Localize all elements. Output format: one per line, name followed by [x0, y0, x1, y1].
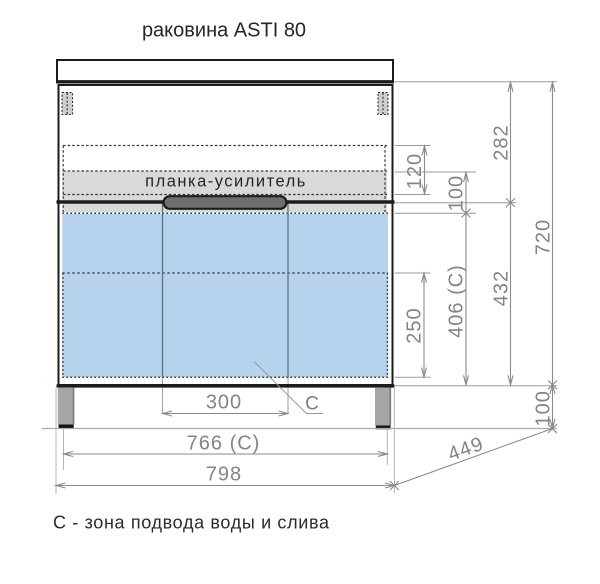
svg-text:282: 282: [490, 124, 512, 160]
svg-text:раковина ASTI 80: раковина ASTI 80: [142, 20, 306, 42]
svg-text:300: 300: [206, 392, 242, 414]
svg-text:С - зона подвода воды и слива: С - зона подвода воды и слива: [53, 513, 330, 533]
svg-text:планка-усилитель: планка-усилитель: [145, 173, 307, 191]
svg-text:766 (С): 766 (С): [187, 433, 261, 455]
svg-text:100: 100: [446, 175, 468, 211]
svg-text:798: 798: [206, 464, 242, 486]
svg-text:100: 100: [532, 390, 554, 426]
svg-text:406 (С): 406 (С): [446, 264, 468, 338]
svg-text:720: 720: [532, 219, 554, 255]
svg-text:С: С: [305, 394, 319, 415]
svg-text:120: 120: [404, 153, 426, 189]
svg-text:432: 432: [490, 270, 512, 306]
svg-text:250: 250: [404, 307, 426, 343]
